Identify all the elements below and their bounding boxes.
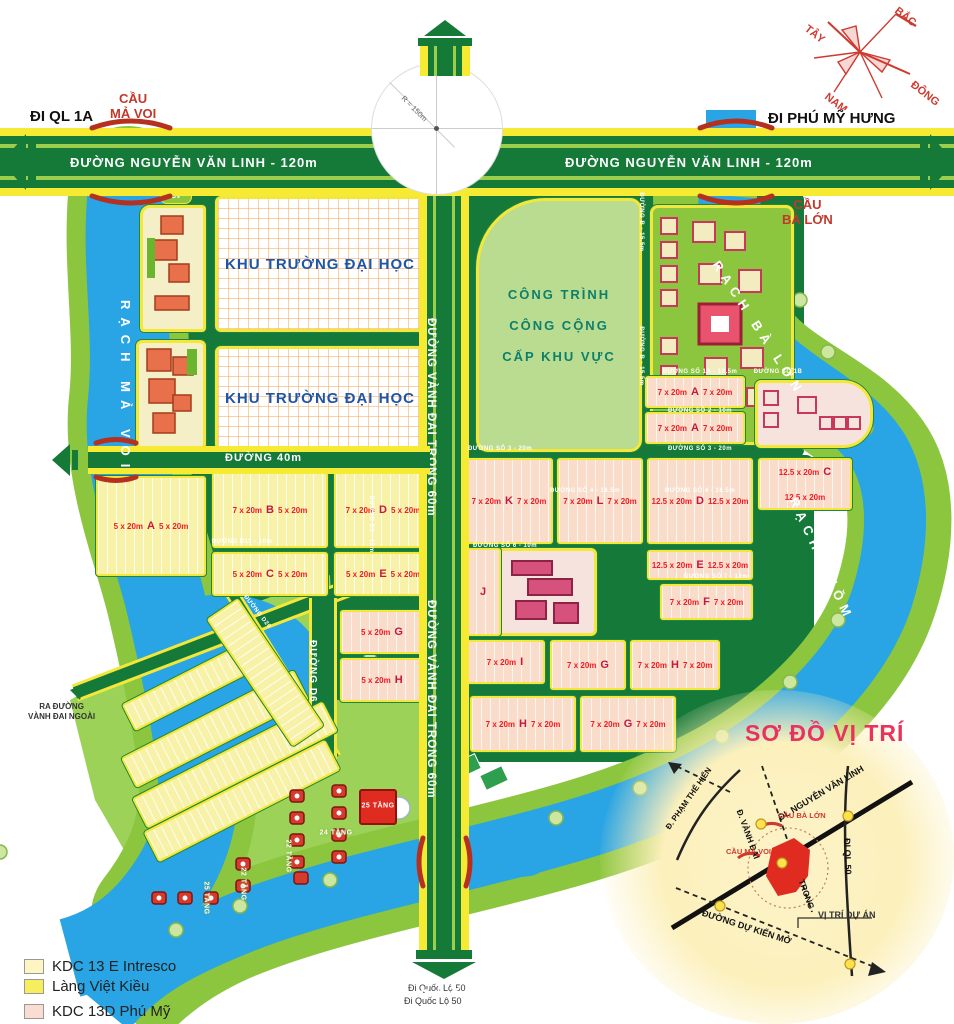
legend-item: Làng Việt Kiều [24,978,176,995]
parcel-block-J: J [465,548,501,636]
parcel-block-A: 5 x 20mA5 x 20m [96,476,206,576]
road-name-label: ĐƯỜNG SỐ 4 - 16.5m [665,488,735,494]
campus-block-1 [140,205,206,332]
legend: KDC 13 E IntrescoLàng Việt KiềuKDC 13D P… [24,958,176,1023]
tower-label: 25 TẦNG [203,881,210,914]
parcel-block-K: 7 x 20mK7 x 20m [465,458,553,544]
parcel-block-I: 7 x 20mI [465,640,545,684]
compass-south: NAM [822,91,849,110]
tower-label: 25 TẦNG [361,803,394,810]
road-40m-label: ĐƯỜNG 40m [225,452,302,464]
school-buildings [498,551,594,633]
inset-cau-ba-lon-label: CẦU BÀ LỚN [778,812,826,820]
road-name-label: ĐƯỜNG SỐ 7 - 12m [684,574,748,580]
road-north-stub [420,46,470,76]
parcel-block-H: 5 x 20mH [340,658,424,702]
parcel-block-C: 12.5 x 20mC12.5 x 20m [758,458,852,510]
university-label: KHU TRƯỜNG ĐẠI HỌC [225,390,415,407]
school-block-east [755,380,873,448]
tower-label: 22 TẦNG [240,867,247,900]
campus-block-2 [136,340,206,450]
university-label: KHU TRƯỜNG ĐẠI HỌC [225,256,415,273]
university-block-2: KHU TRƯỜNG ĐẠI HỌC [215,346,425,450]
parcel-block-B: 7 x 20mB5 x 20m [212,472,328,548]
school-block-center [495,548,597,636]
parcel-block-E: 5 x 20mE5 x 20m [334,552,432,596]
parcel-block-D: 7 x 20mD5 x 20m [334,472,432,548]
parcel-block-A: 7 x 20mA7 x 20m [645,376,745,408]
parcel-block-F: 7 x 20mF7 x 20m [660,584,753,620]
bridge-ma-voi-label: CẦU MẢ VOI [110,92,156,122]
master-plan-map: KHU TRƯỜNG ĐẠI HỌC KHU TRƯỜNG ĐẠI HỌC CÔ… [0,0,954,1024]
road-d6-label: ĐƯỜNG D6 [307,640,318,703]
road-vanh-dai-trong [419,196,469,952]
road-name-label: ĐƯỜNG SỐ 3 - 20m [668,446,732,452]
inset-cau-ma-voi-label: CẦU MẢ VOI [726,848,771,856]
exit-ql1a-label: ĐI QL 1A [30,108,93,125]
arrow-south-bar [416,950,472,959]
arrow-40m-bar [72,450,78,470]
parcel-block-C: 5 x 20mC5 x 20m [212,552,328,596]
legend-label: KDC 13 E Intresco [52,958,176,975]
road-name-label: ĐƯỜNG D11 - 10m [212,539,273,545]
legend-swatch [24,1004,44,1019]
arrow-west-bar [28,138,36,186]
public-works-label: CÔNG TRÌNH [508,287,610,302]
arrow-east-bar [920,138,928,186]
compass-east: ĐÔNG [908,78,942,109]
parcel-block-D: 12.5 x 20mD12.5 x 20m [647,458,753,544]
roundabout: R = 150m [372,64,502,194]
compass-west: TÂY [802,22,828,46]
bridge-ba-lon-label: CẦU BÀ LỚN [782,198,833,228]
roundabout-radius-label: R = 150m [400,94,430,124]
arrow-40m-west-icon [52,444,70,476]
legend-swatch [24,979,44,994]
legend-label: Làng Việt Kiều [52,978,149,995]
road-name-label: ĐƯỜNG B - 15.5m [638,192,644,251]
road-name-label: ĐƯỜNG SỐ 2 - 10m [668,408,732,414]
road-name-label: ĐƯỜNG SỐ 3 - 20m [468,446,532,452]
school-buildings [758,383,870,445]
legend-item: KDC 13D Phú Mỹ [24,1003,176,1020]
road-vdt-label-lower: ĐƯỜNG VÀNH ĐAI TRONG 60m [425,600,437,799]
road-nvl-label-west: ĐƯỜNG NGUYỄN VĂN LINH - 120m [70,155,318,170]
public-works-label: CÔNG CỘNG [509,318,609,333]
inset-vi-tri-label: VỊ TRÍ DỰ ÁN [818,910,875,920]
parcel-block-L: 7 x 20mL7 x 20m [557,458,643,544]
road-name-label: ĐƯỜNG SỐ 1B [754,369,803,375]
arrow-north-icon [424,20,466,36]
parcel-block-H: 7 x 20mH7 x 20m [470,696,576,752]
road-vdt-label-upper: ĐƯỜNG VÀNH ĐAI TRONG 60m [425,318,437,517]
parcel-block-G: 7 x 20mG [550,640,626,690]
tower-label: 22 TẦNG [285,839,292,872]
road-name-label: ĐƯỜNG SỐ 6 - 10m [473,543,537,549]
exit-phu-my-hung-label: ĐI PHÚ MỸ HƯNG [768,110,895,127]
legend-label: KDC 13D Phú Mỹ [52,1003,170,1020]
road-name-label: ĐƯỜNG SỐ 4 - 16.5m [550,488,620,494]
public-works-block: CÔNG TRÌNH CÔNG CỘNG CẤP KHU VỰC [476,198,642,452]
compass-rose-icon: BẮC TÂY ĐÔNG NAM [798,0,954,110]
inset-diagram [610,700,954,1024]
river-ma-voi-label: RẠCH MẢ VOI [118,300,133,475]
exit-vanh-dai-ngoai-label: RA ĐƯỜNG VÀNH ĐAI NGOÀI [28,702,95,723]
road-name-label: ĐƯỜNG B - 15.5m [638,326,644,385]
legend-item: KDC 13 E Intresco [24,958,176,975]
public-works-label: CẤP KHU VỰC [502,349,615,364]
parcel-block-G: 5 x 20mG [340,610,424,654]
road-nvl-label-east: ĐƯỜNG NGUYỄN VĂN LINH - 120m [565,155,813,170]
inset-ql50-label: ĐI QL 50 [842,838,853,875]
road-name-label: ĐƯỜNG D9 - 12m [368,495,374,552]
parcel-block-H: 7 x 20mH7 x 20m [630,640,720,690]
campus-buildings [139,343,203,447]
university-block-1: KHU TRƯỜNG ĐẠI HỌC [215,196,425,332]
legend-swatch [24,959,44,974]
campus-buildings [143,208,203,329]
arrow-west-icon [2,134,26,190]
tower-label: 24 TẦNG [319,830,352,837]
parcel-block-A: 7 x 20mA7 x 20m [645,412,745,444]
road-name-label: ĐƯỜNG SỐ 1A - 10.5m [663,369,738,375]
arrow-east-icon [930,134,954,190]
arrow-north-bar [418,38,472,46]
